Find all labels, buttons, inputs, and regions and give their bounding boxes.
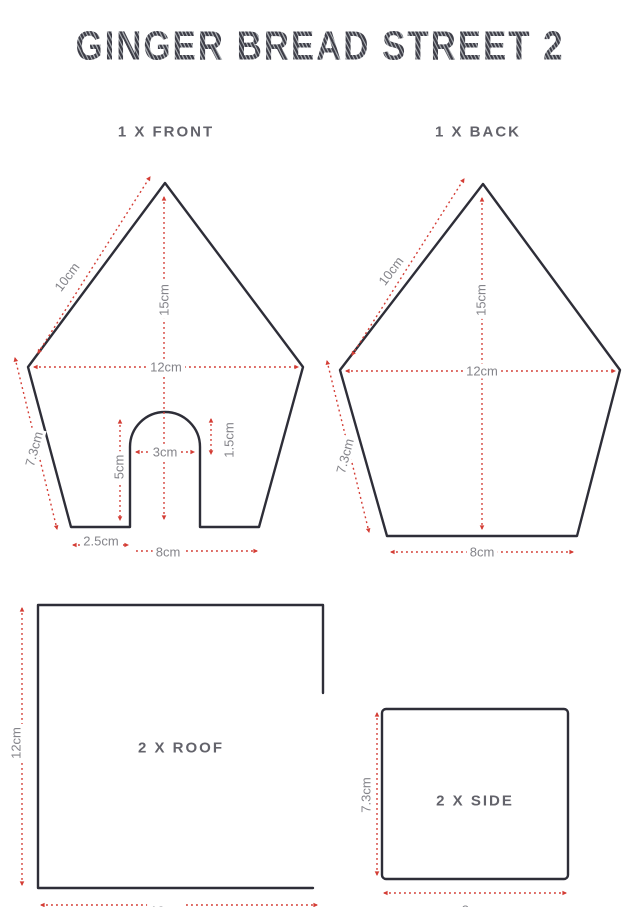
front-door-width-label: 3cm [150,445,181,460]
front-base-label: 8cm [153,545,184,560]
front-ledge-label: 2.5cm [80,534,121,549]
side-heading: 2 X SIDE [436,793,514,810]
front-slope-dimension [38,177,150,353]
pattern-sheet: GINGER BREAD STREET 2 1 X FRONT 1 X BACK… [0,0,640,907]
page-title: GINGER BREAD STREET 2 [76,22,565,69]
roof-heading: 2 X ROOF [138,740,224,757]
side-width-label: 8cm [459,903,490,907]
front-height-label: 15cm [157,281,172,319]
back-base-label: 8cm [467,545,498,560]
roof-width-label: 10cm [147,904,185,907]
back-heading: 1 X BACK [435,124,521,141]
front-door-height-label: 5cm [112,452,127,483]
back-height-label: 15cm [474,281,489,319]
front-heading: 1 X FRONT [118,124,214,141]
back-slope-dimension [352,179,464,355]
front-arch-height-label: 1.5cm [222,419,237,460]
pattern-diagram [0,0,640,907]
back-width-label: 12cm [463,364,501,379]
front-outline [28,183,303,527]
roof-height-label: 12cm [9,724,24,762]
back-outline [340,184,620,536]
side-height-label: 7.3cm [359,774,374,815]
front-width-label: 12cm [147,360,185,375]
